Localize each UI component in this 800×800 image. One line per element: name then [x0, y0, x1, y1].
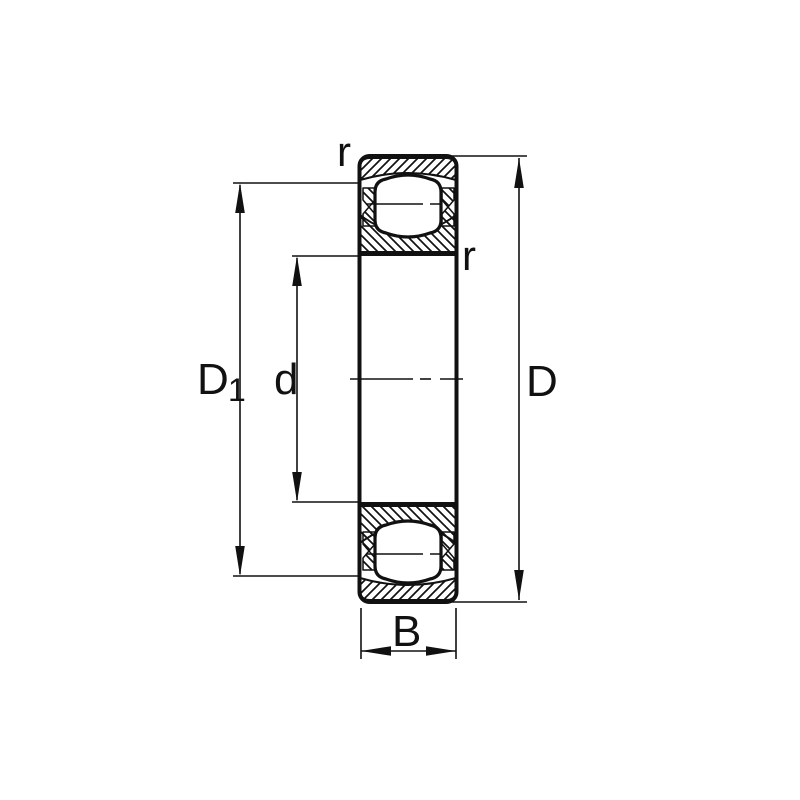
- d-arrow-up: [292, 256, 302, 286]
- drawing-canvas: r r D 1 d D B: [0, 0, 800, 800]
- label-outside-diameter-d: D: [526, 357, 558, 406]
- label-width-b: B: [392, 607, 421, 656]
- label-fillet-r-side: r: [462, 232, 476, 279]
- d1-arrow-up: [235, 183, 245, 213]
- outside-d-arrow-up: [514, 158, 524, 188]
- b-arrow-left: [361, 646, 391, 656]
- roller-bottom: [375, 521, 441, 583]
- outside-d-arrow-down: [514, 570, 524, 600]
- label-shoulder-diameter-d1: D: [197, 355, 229, 404]
- label-shoulder-diameter-d1-subscript: 1: [228, 372, 246, 408]
- dimension-d: [292, 256, 360, 502]
- bearing-section-view: [350, 156, 463, 602]
- bearing-drawing: r r D 1 d D B: [0, 0, 800, 800]
- roller-top: [375, 175, 441, 237]
- label-bore-diameter-d: d: [274, 355, 298, 404]
- label-fillet-r-top: r: [337, 128, 351, 175]
- b-arrow-right: [426, 646, 456, 656]
- d-arrow-down: [292, 472, 302, 502]
- d1-arrow-down: [235, 546, 245, 576]
